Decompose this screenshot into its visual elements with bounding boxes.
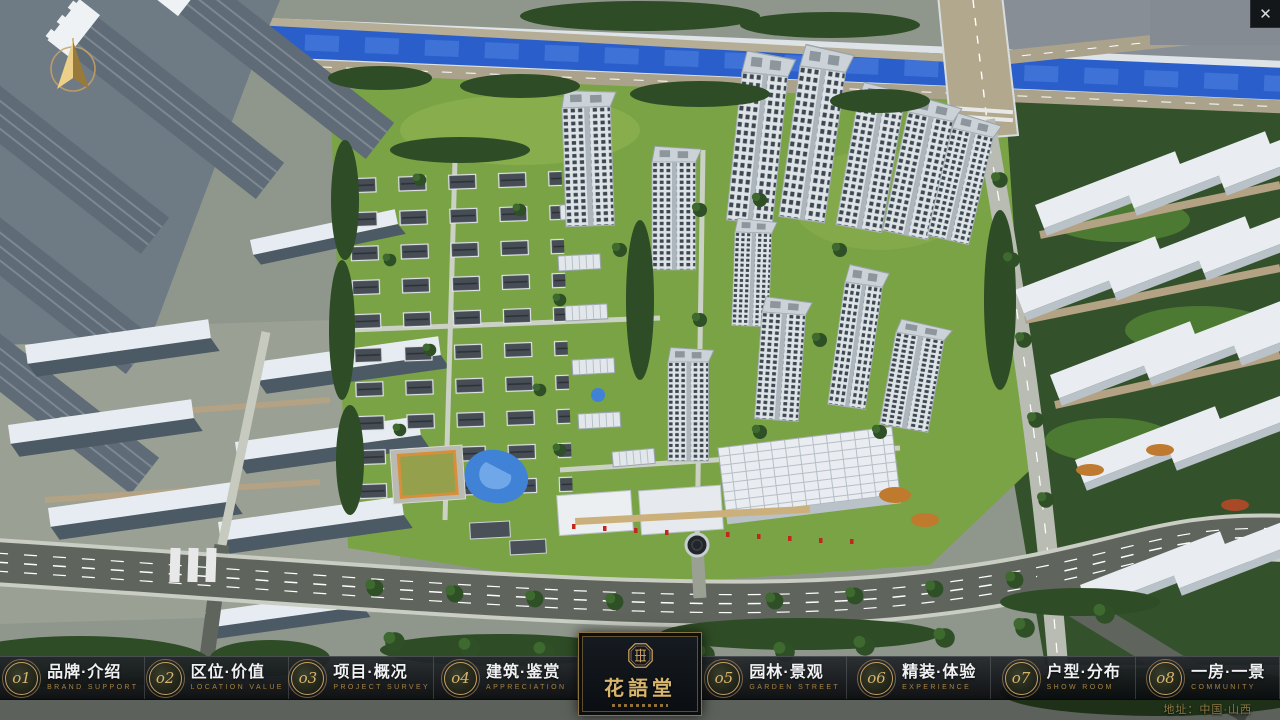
logo-tagline-rule xyxy=(612,704,668,707)
nav-item-garden[interactable]: o5 园林·景观 GARDEN STREET xyxy=(702,657,847,699)
nav-subtitle: COMMUNITY xyxy=(1191,684,1265,692)
pond xyxy=(591,388,605,402)
nav-item-decoration[interactable]: o6 精装·体验 EXPERIENCE xyxy=(847,657,992,699)
presentation-window: ✕ o1 品牌·介绍 BRAND SUPPORT o2 区位·价值 LOCATI… xyxy=(0,0,1280,720)
nav-subtitle: BRAND SUPPORT xyxy=(47,684,138,692)
nav-badge-6: o6 xyxy=(860,662,893,695)
nav-title: 精装·体验 xyxy=(902,664,976,682)
nav-title: 项目·概况 xyxy=(333,664,430,682)
nav-badge-3: o3 xyxy=(291,662,324,695)
nav-badge-8: o8 xyxy=(1149,662,1182,695)
close-button[interactable]: ✕ xyxy=(1250,0,1280,28)
nav-title: 户型·分布 xyxy=(1047,664,1121,682)
nav-item-floorplan[interactable]: o7 户型·分布 SHOW ROOM xyxy=(991,657,1136,699)
clubhouse xyxy=(390,445,466,504)
nav-badge-5: o5 xyxy=(707,662,740,695)
nav-subtitle: APPRECIATION xyxy=(486,684,566,692)
nav-item-scenery[interactable]: o8 一房·一景 COMMUNITY xyxy=(1136,657,1280,699)
nav-title: 园林·景观 xyxy=(749,664,840,682)
nav-item-location[interactable]: o2 区位·价值 LOCATION VALUE xyxy=(145,657,290,699)
project-address: 地址：中国·山西 xyxy=(1163,701,1252,717)
nav-subtitle: EXPERIENCE xyxy=(902,684,976,692)
nav-item-project[interactable]: o3 项目·概况 PROJECT SURVEY xyxy=(289,657,434,699)
nav-badge-1: o1 xyxy=(5,662,38,695)
project-logo-plaque[interactable]: 花語堂 xyxy=(578,632,702,716)
nav-subtitle: PROJECT SURVEY xyxy=(333,684,430,692)
master-plan-canvas[interactable] xyxy=(0,0,1280,720)
nav-subtitle: GARDEN STREET xyxy=(749,684,840,692)
nav-group-right: o5 园林·景观 GARDEN STREET o6 精装·体验 EXPERIEN… xyxy=(702,657,1280,699)
nav-badge-4: o4 xyxy=(444,662,477,695)
nav-item-brand[interactable]: o1 品牌·介绍 BRAND SUPPORT xyxy=(0,657,145,699)
nav-item-architecture[interactable]: o4 建筑·鉴赏 APPRECIATION xyxy=(434,657,579,699)
seal-emblem-icon xyxy=(627,642,654,669)
project-name: 花語堂 xyxy=(604,672,676,701)
nav-group-left: o1 品牌·介绍 BRAND SUPPORT o2 区位·价值 LOCATION… xyxy=(0,657,578,699)
nav-subtitle: LOCATION VALUE xyxy=(191,684,284,692)
nav-subtitle: SHOW ROOM xyxy=(1047,684,1121,692)
nav-badge-2: o2 xyxy=(149,662,182,695)
nav-title: 一房·一景 xyxy=(1191,664,1265,682)
nav-title: 区位·价值 xyxy=(191,664,284,682)
close-icon: ✕ xyxy=(1259,5,1272,23)
nav-title: 建筑·鉴赏 xyxy=(486,664,566,682)
nav-badge-7: o7 xyxy=(1005,662,1038,695)
nav-title: 品牌·介绍 xyxy=(47,664,138,682)
